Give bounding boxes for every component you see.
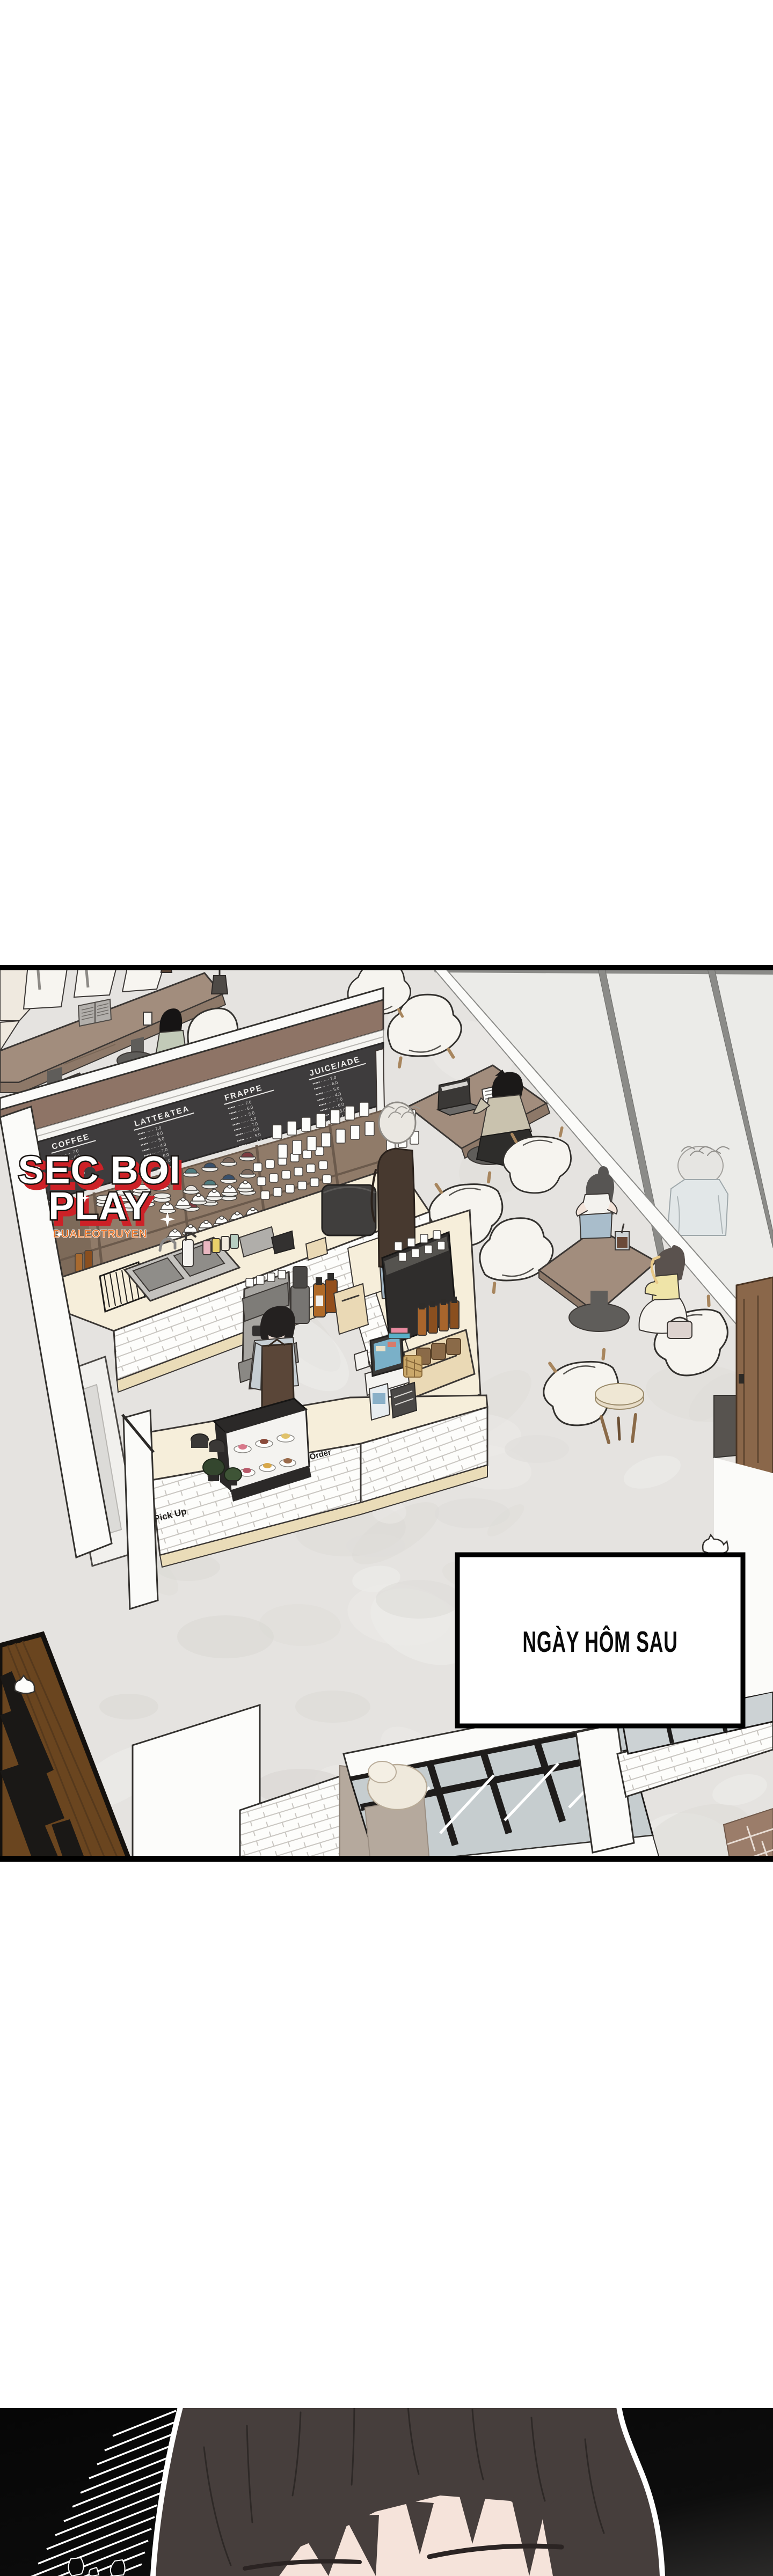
svg-text:NGÀY HÔM SAU: NGÀY HÔM SAU [522,1625,677,1658]
svg-text:DUALEOTRUYEN: DUALEOTRUYEN [53,1228,147,1240]
svg-text:PLAY: PLAY [48,1185,150,1228]
